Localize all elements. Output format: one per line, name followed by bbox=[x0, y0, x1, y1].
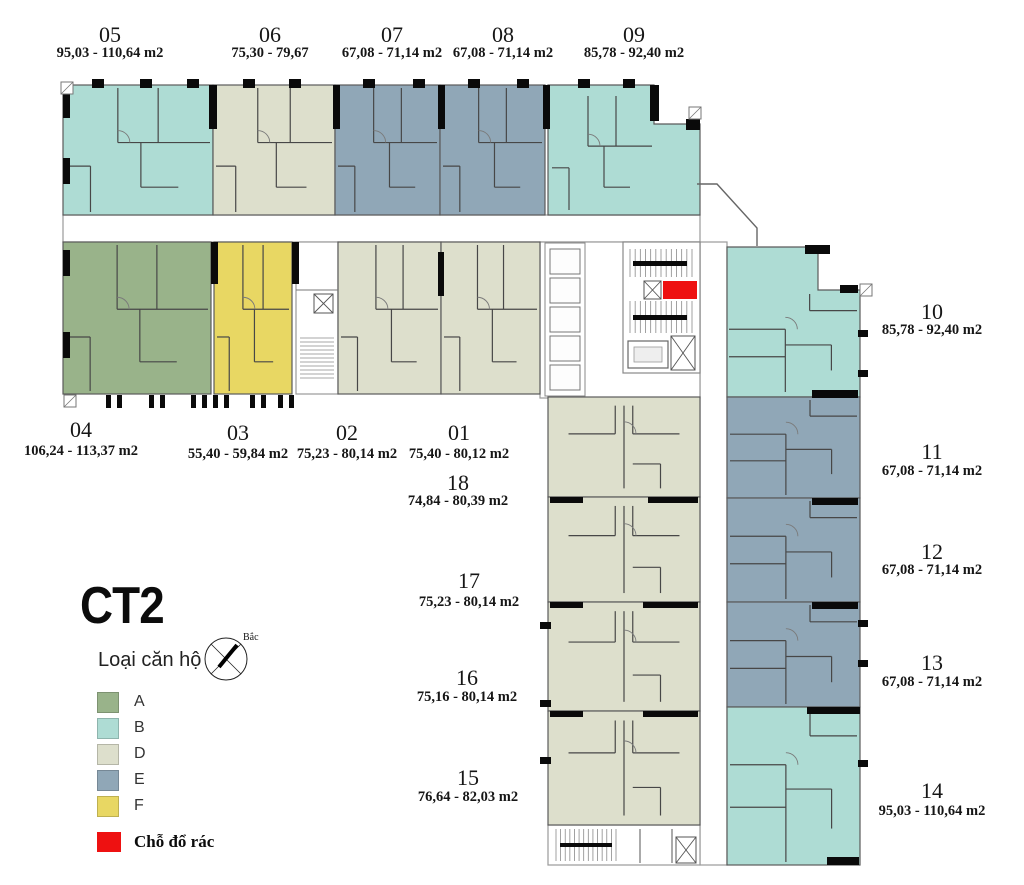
trash-label: Chỗ đổ rác bbox=[134, 832, 214, 852]
unit-14-region bbox=[727, 707, 860, 865]
unit-13-region bbox=[727, 602, 860, 707]
legend-item-A: A bbox=[97, 689, 320, 715]
unit-08-area: 67,08 - 71,14 m2 bbox=[453, 45, 553, 61]
elevator-cell bbox=[550, 278, 580, 303]
unit-01-region bbox=[441, 242, 540, 394]
unit-05-region bbox=[63, 85, 213, 215]
legend-swatch-F bbox=[97, 796, 119, 817]
unit-16-area: 75,16 - 80,14 m2 bbox=[417, 689, 517, 705]
unit-12-area: 67,08 - 71,14 m2 bbox=[882, 562, 982, 578]
unit-04-area: 106,24 - 113,37 m2 bbox=[24, 443, 138, 459]
legend-items: ABDEF bbox=[97, 689, 320, 819]
building-title: CT2 bbox=[80, 580, 291, 632]
legend-item-B: B bbox=[97, 715, 320, 741]
legend: CT2 Loại căn hộ ABDEF Chỗ đổ rác bbox=[80, 580, 320, 852]
legend-swatch-B bbox=[97, 718, 119, 739]
unit-14-number: 14 bbox=[921, 778, 943, 803]
elevator-cell bbox=[550, 336, 580, 361]
floor-plan-page: 0595,03 - 110,64 m20675,30 - 79,670767,0… bbox=[0, 0, 1024, 885]
unit-01-number: 01 bbox=[448, 420, 470, 445]
unit-11-number: 11 bbox=[921, 439, 942, 464]
elevator-cell bbox=[550, 249, 580, 274]
unit-03-number: 03 bbox=[227, 420, 249, 445]
unit-11-area: 67,08 - 71,14 m2 bbox=[882, 463, 982, 479]
legend-trash-row: Chỗ đổ rác bbox=[97, 832, 320, 852]
unit-18-area: 74,84 - 80,39 m2 bbox=[408, 493, 508, 509]
stairwell-west bbox=[296, 242, 338, 394]
legend-letter: D bbox=[134, 745, 146, 763]
unit-10-number: 10 bbox=[921, 299, 943, 324]
unit-01-area: 75,40 - 80,12 m2 bbox=[409, 446, 509, 462]
unit-15-area: 76,64 - 82,03 m2 bbox=[418, 789, 518, 805]
unit-08-number: 08 bbox=[492, 22, 514, 47]
unit-12-region bbox=[727, 498, 860, 602]
elevator-cell bbox=[550, 365, 580, 390]
unit-10-region bbox=[727, 247, 860, 397]
legend-swatch-D bbox=[97, 744, 119, 765]
unit-06-region bbox=[213, 85, 335, 215]
unit-14-area: 95,03 - 110,64 m2 bbox=[879, 803, 986, 819]
legend-letter: A bbox=[134, 693, 145, 711]
unit-09-region bbox=[548, 85, 700, 215]
legend-letter: B bbox=[134, 719, 145, 737]
legend-letter: E bbox=[134, 771, 145, 789]
legend-swatch-A bbox=[97, 692, 119, 713]
unit-10-area: 85,78 - 92,40 m2 bbox=[882, 322, 982, 338]
unit-06-area: 75,30 - 79,67 bbox=[231, 45, 308, 61]
unit-13-area: 67,08 - 71,14 m2 bbox=[882, 674, 982, 690]
unit-17-area: 75,23 - 80,14 m2 bbox=[419, 594, 519, 610]
unit-04-region bbox=[63, 242, 211, 394]
trash-area bbox=[663, 281, 697, 299]
unit-11-region bbox=[727, 397, 860, 498]
unit-05-area: 95,03 - 110,64 m2 bbox=[57, 45, 164, 61]
unit-09-number: 09 bbox=[623, 22, 645, 47]
unit-03-region bbox=[214, 242, 292, 394]
unit-03-area: 55,40 - 59,84 m2 bbox=[188, 446, 288, 462]
unit-13-number: 13 bbox=[921, 650, 943, 675]
legend-heading: Loại căn hộ bbox=[98, 649, 320, 672]
unit-16-number: 16 bbox=[456, 665, 478, 690]
unit-17-number: 17 bbox=[458, 568, 480, 593]
unit-07-area: 67,08 - 71,14 m2 bbox=[342, 45, 442, 61]
corridor-horizontal bbox=[63, 215, 700, 242]
unit-12-number: 12 bbox=[921, 539, 943, 564]
unit-08-region bbox=[440, 85, 545, 215]
unit-18-number: 18 bbox=[447, 470, 469, 495]
wing-connector bbox=[697, 184, 757, 246]
unit-02-area: 75,23 - 80,14 m2 bbox=[297, 446, 397, 462]
elevator-cell bbox=[550, 307, 580, 332]
unit-07-region bbox=[335, 85, 440, 215]
legend-item-D: D bbox=[97, 741, 320, 767]
unit-02-region bbox=[338, 242, 441, 394]
unit-02-number: 02 bbox=[336, 420, 358, 445]
unit-05-number: 05 bbox=[99, 22, 121, 47]
unit-09-area: 85,78 - 92,40 m2 bbox=[584, 45, 684, 61]
legend-item-F: F bbox=[97, 793, 320, 819]
unit-07-number: 07 bbox=[381, 22, 403, 47]
legend-item-E: E bbox=[97, 767, 320, 793]
legend-letter: F bbox=[134, 797, 144, 815]
legend-swatch-E bbox=[97, 770, 119, 791]
unit-04-number: 04 bbox=[70, 417, 92, 442]
unit-15-number: 15 bbox=[457, 765, 479, 790]
corridor-vertical bbox=[700, 242, 727, 865]
unit-06-number: 06 bbox=[259, 22, 281, 47]
trash-swatch bbox=[97, 832, 121, 852]
